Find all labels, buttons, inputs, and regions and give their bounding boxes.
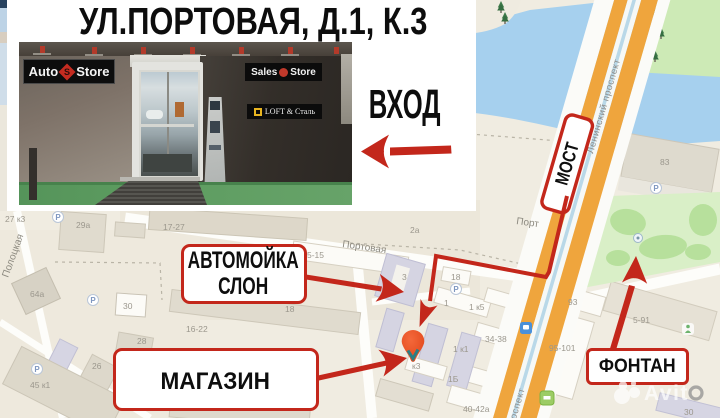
svg-text:Avit: Avit [644,382,689,405]
